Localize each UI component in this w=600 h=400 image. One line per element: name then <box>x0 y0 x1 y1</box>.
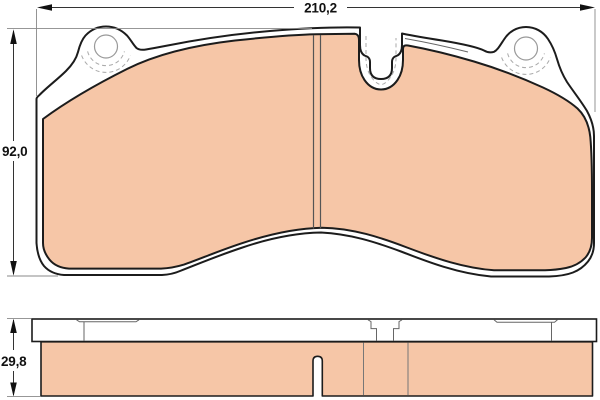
side-friction-block <box>41 342 593 396</box>
arrowhead-right-icon <box>580 4 595 11</box>
width-dimension-label: 210,2 <box>304 1 337 16</box>
thickness-dimension-label: 29,8 <box>1 354 27 369</box>
arrowhead-down-icon <box>10 261 17 276</box>
drawing-page: 210,2 92,0 29,8 <box>0 0 600 400</box>
arrowhead-left-icon <box>37 4 52 11</box>
arrowhead-down-icon <box>10 383 17 397</box>
front-view <box>37 27 595 277</box>
height-dimension-label: 92,0 <box>2 144 27 159</box>
brake-pad-drawing: 210,2 92,0 29,8 <box>0 0 600 400</box>
arrowhead-up-icon <box>10 29 17 44</box>
arrowhead-up-icon <box>10 319 17 333</box>
side-view <box>32 319 597 396</box>
